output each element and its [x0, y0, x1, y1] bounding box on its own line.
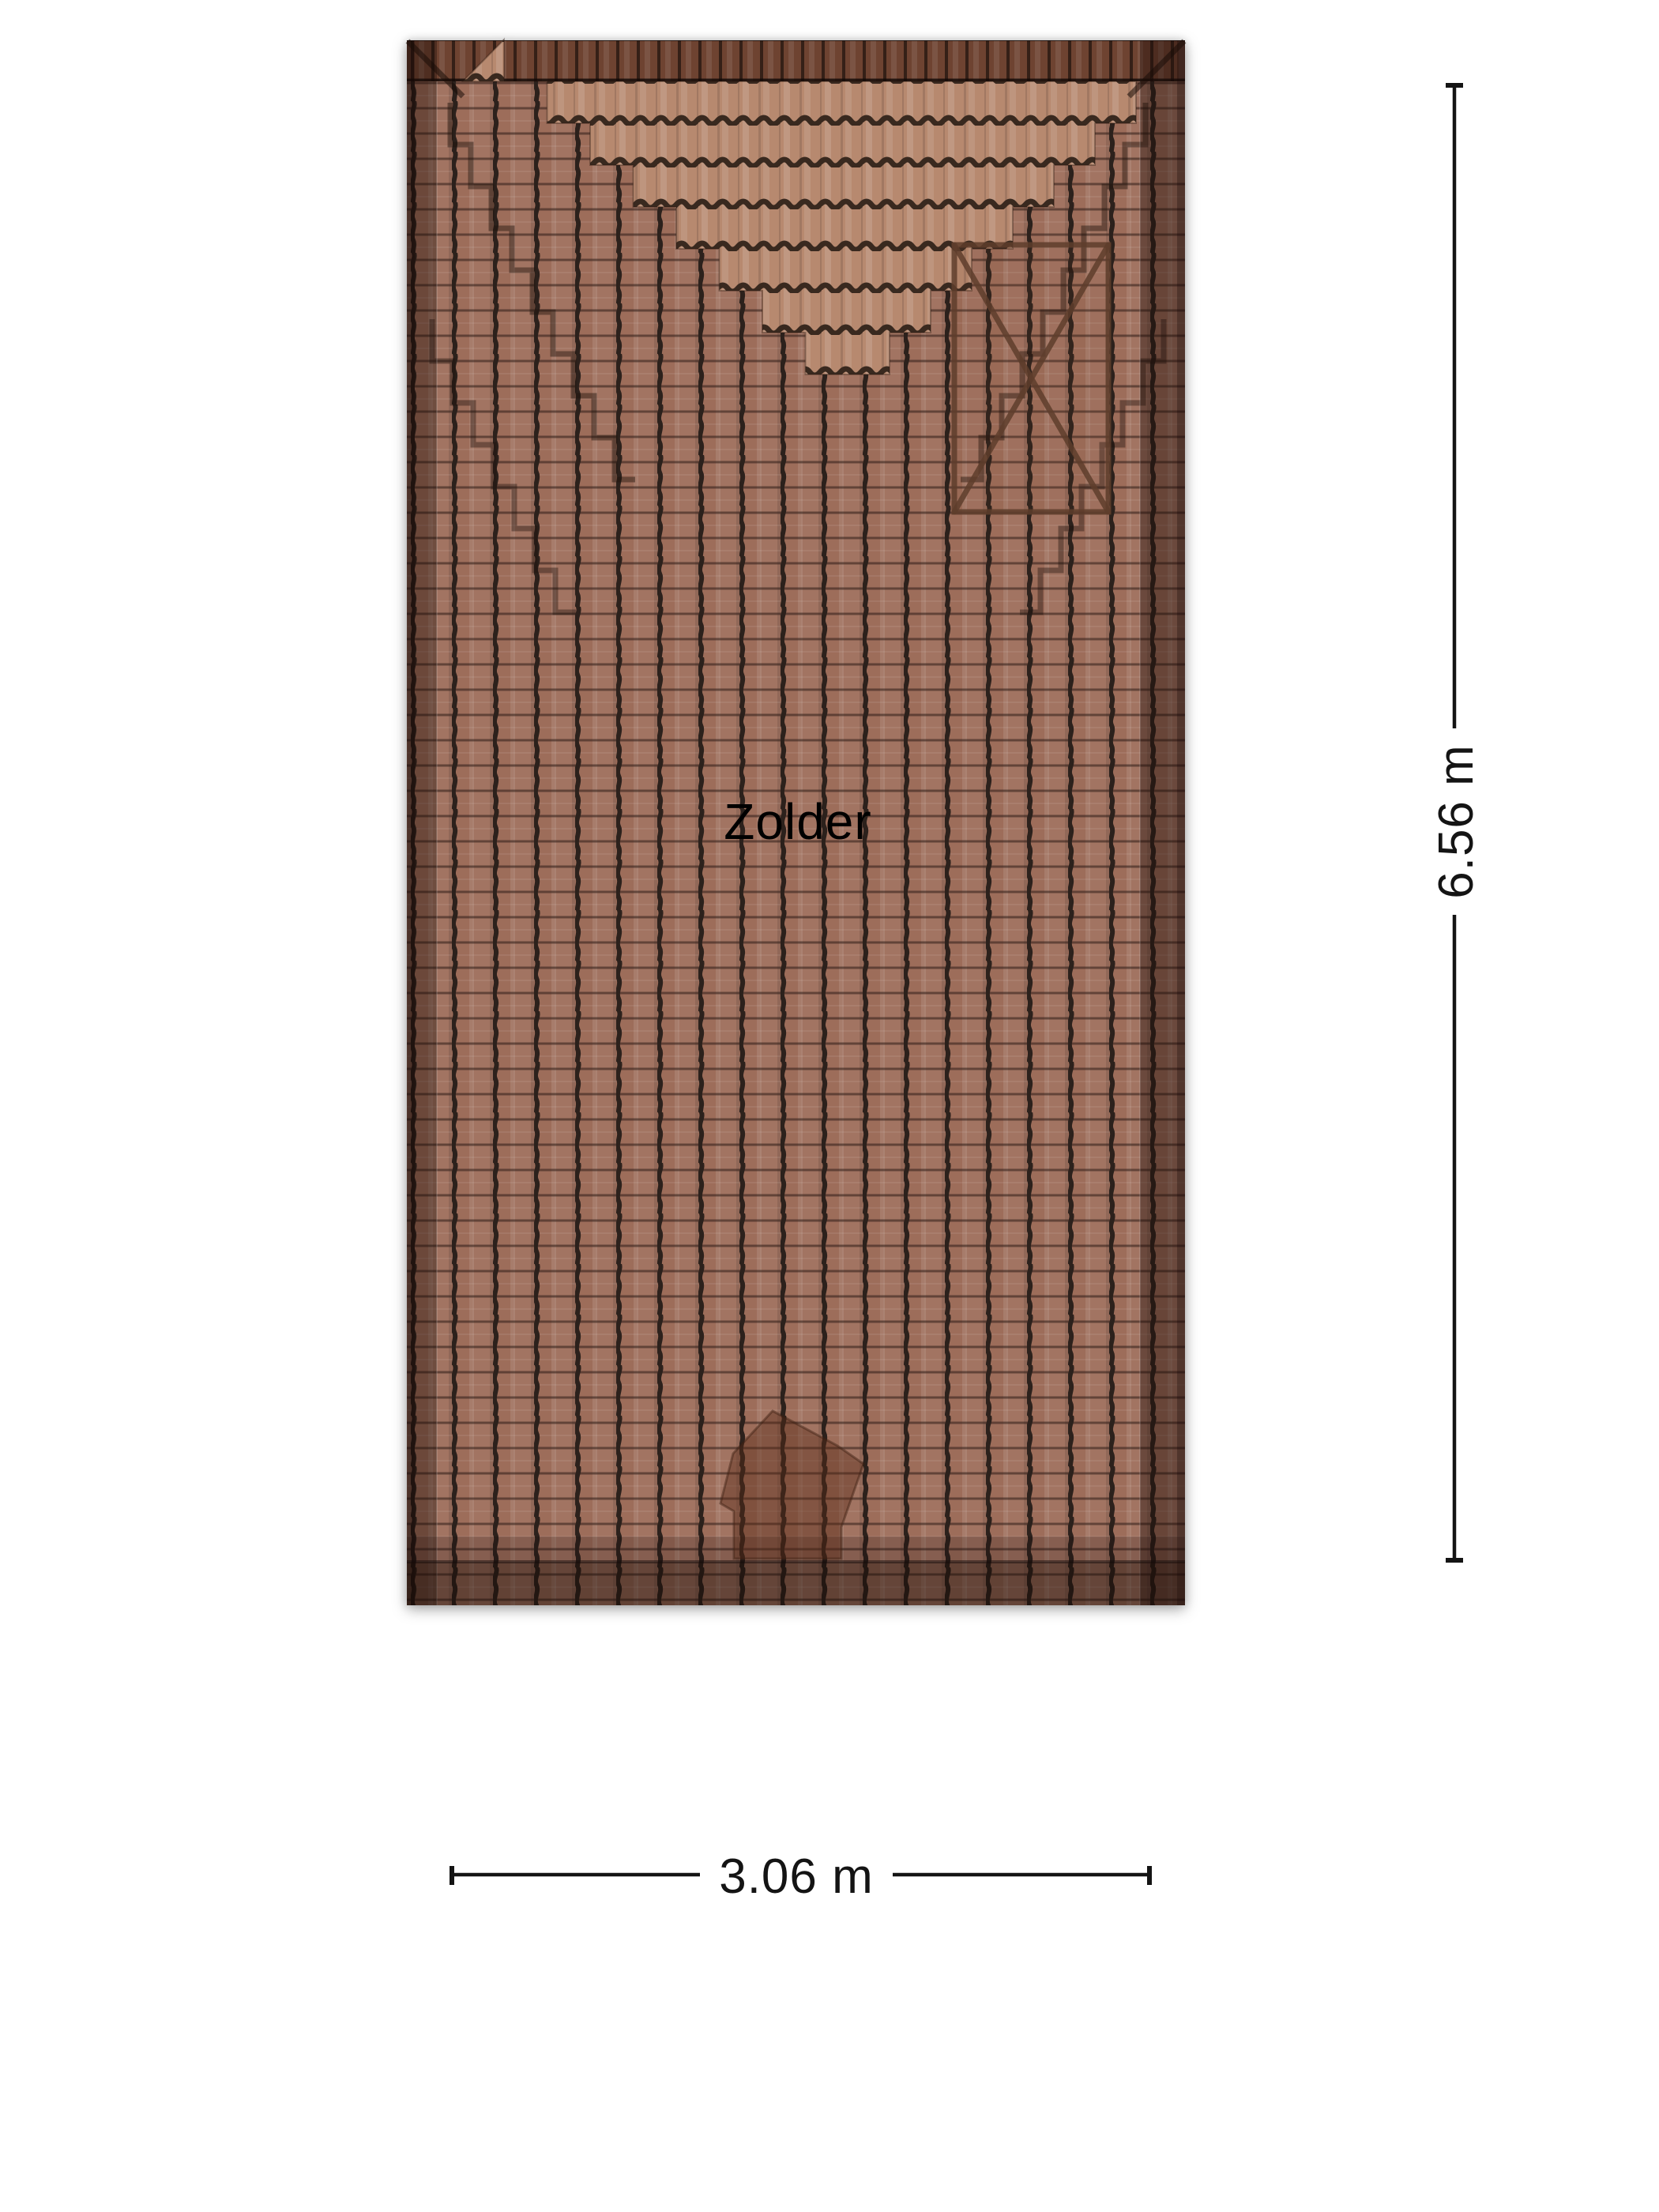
width-dimension-label: 3.06 m: [719, 1849, 874, 1904]
roof-ridge-band: [407, 40, 1185, 81]
floorplan-canvas: Zolder 6.56 m 3.06 m: [0, 0, 1659, 2212]
roof-edge-shading-right-outer: [1177, 40, 1185, 1605]
floorplan-svg: Zolder 6.56 m 3.06 m: [0, 0, 1659, 2212]
roof-plan[interactable]: Zolder: [407, 39, 1185, 1605]
height-dimension-label: 6.56 m: [1429, 744, 1484, 899]
roof-eave-shading-lower: [407, 1562, 1185, 1605]
roof-edge-shading-left-outer: [407, 40, 415, 1605]
room-label: Zolder: [724, 793, 871, 850]
void-cross-marker: [954, 245, 1108, 512]
